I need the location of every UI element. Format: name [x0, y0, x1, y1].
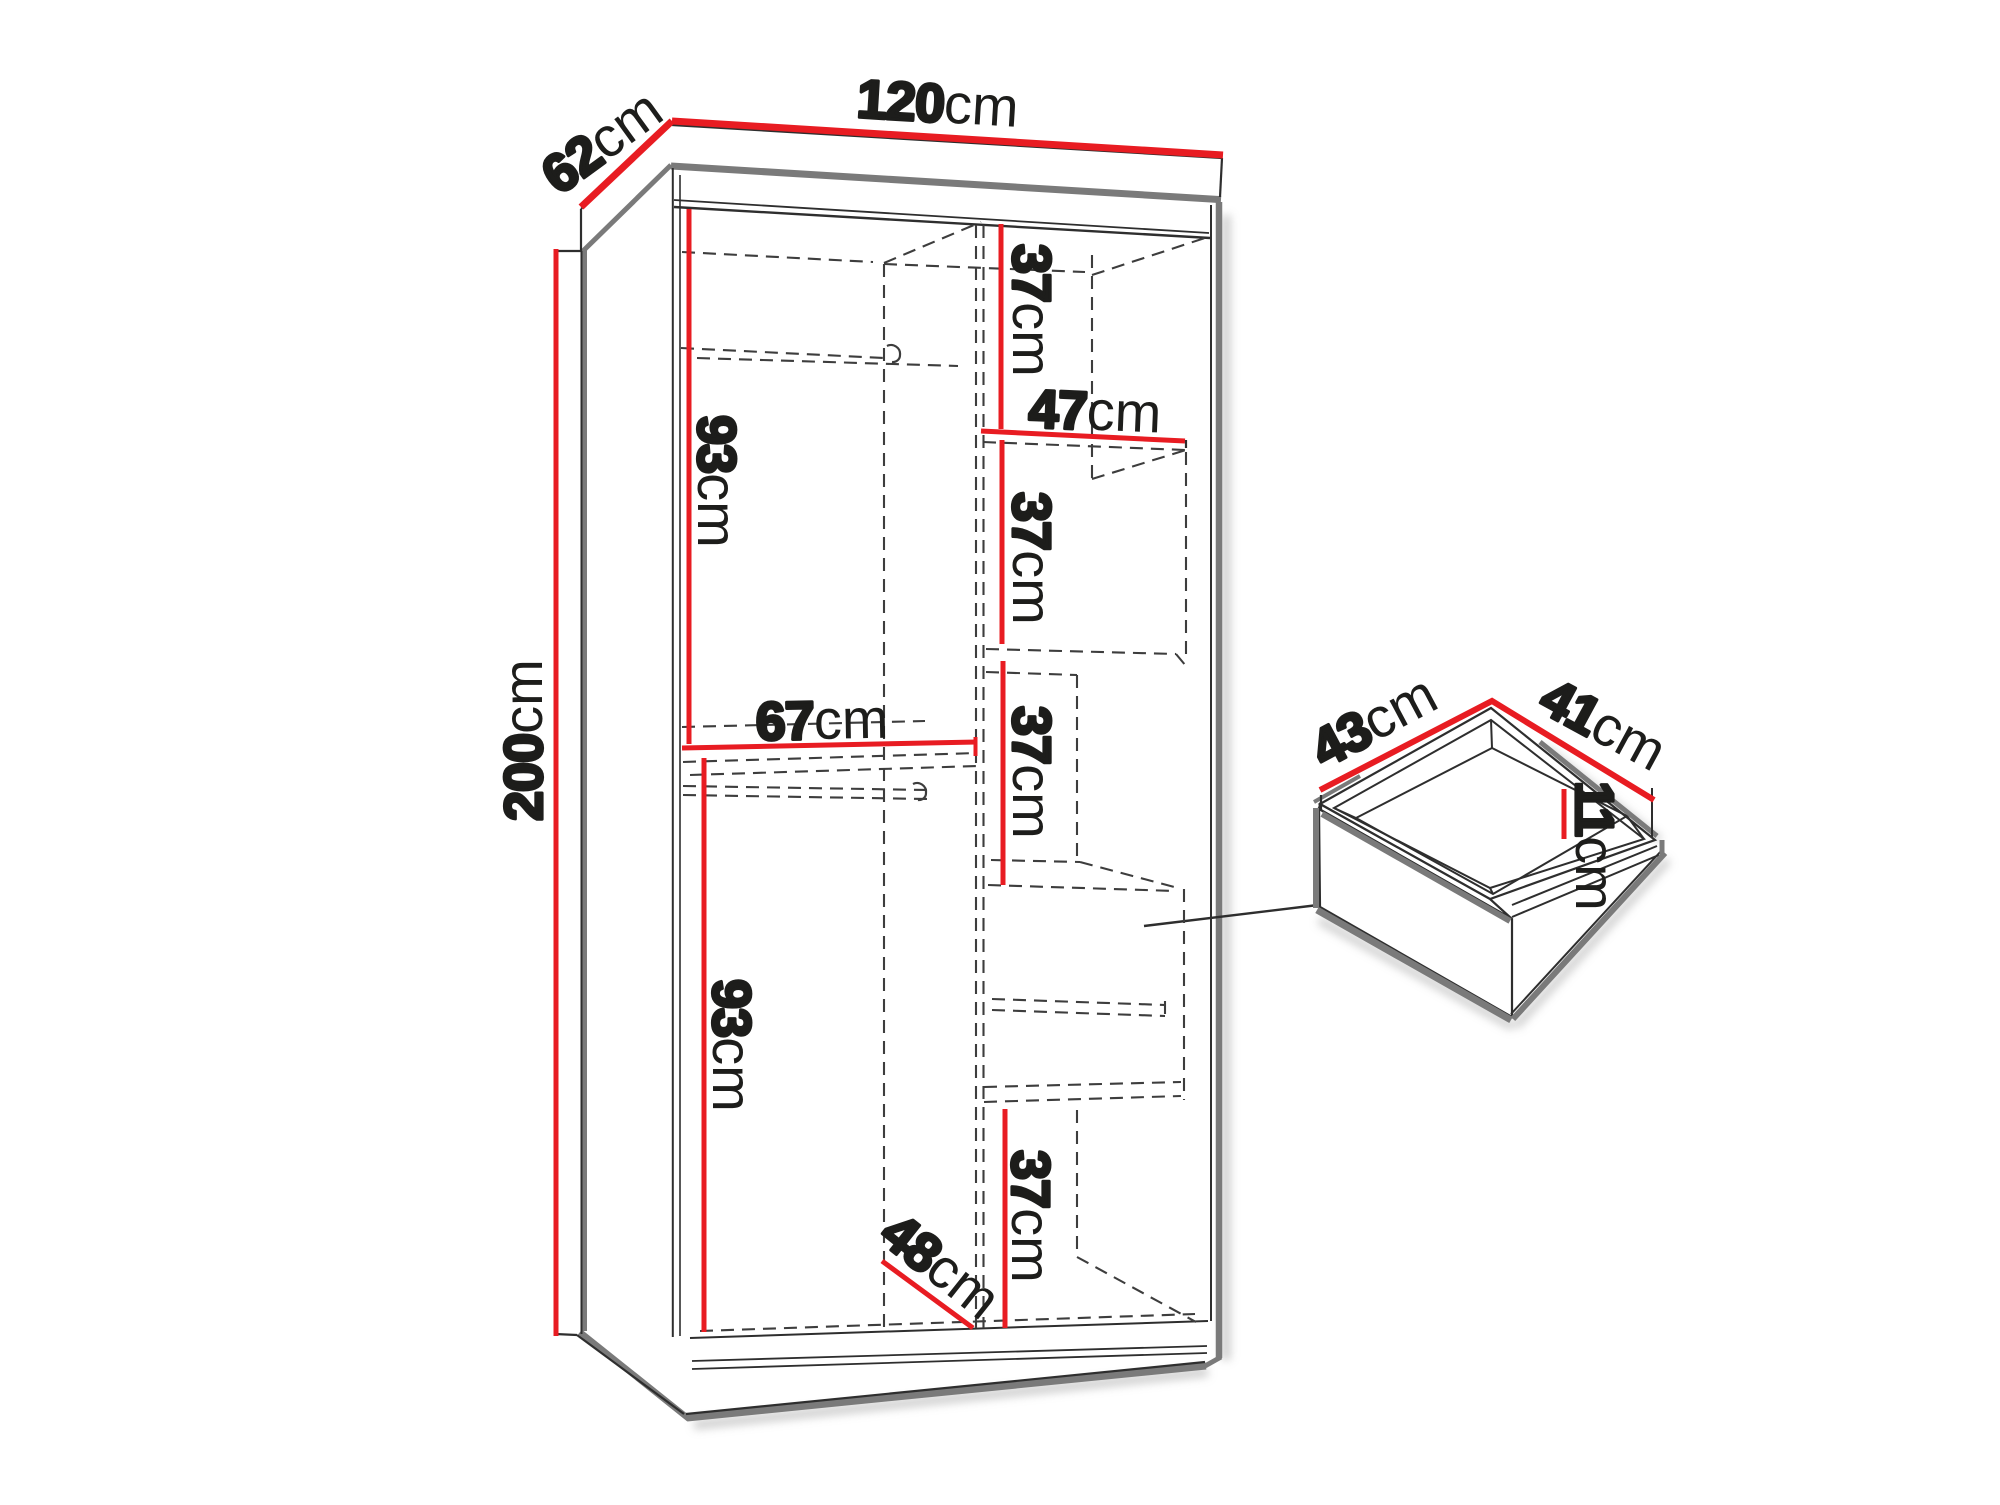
- svg-text:67cm: 67cm: [755, 687, 889, 752]
- svg-text:37cm: 37cm: [1001, 244, 1064, 377]
- svg-text:93cm: 93cm: [686, 415, 749, 548]
- svg-text:11cm: 11cm: [1564, 781, 1627, 911]
- svg-text:37cm: 37cm: [1000, 1150, 1063, 1283]
- svg-text:93cm: 93cm: [701, 979, 764, 1112]
- svg-text:37cm: 37cm: [1001, 706, 1064, 839]
- svg-text:200cm: 200cm: [491, 659, 554, 821]
- svg-text:37cm: 37cm: [1001, 492, 1064, 625]
- svg-text:47cm: 47cm: [1027, 376, 1162, 445]
- svg-text:120cm: 120cm: [855, 66, 1020, 139]
